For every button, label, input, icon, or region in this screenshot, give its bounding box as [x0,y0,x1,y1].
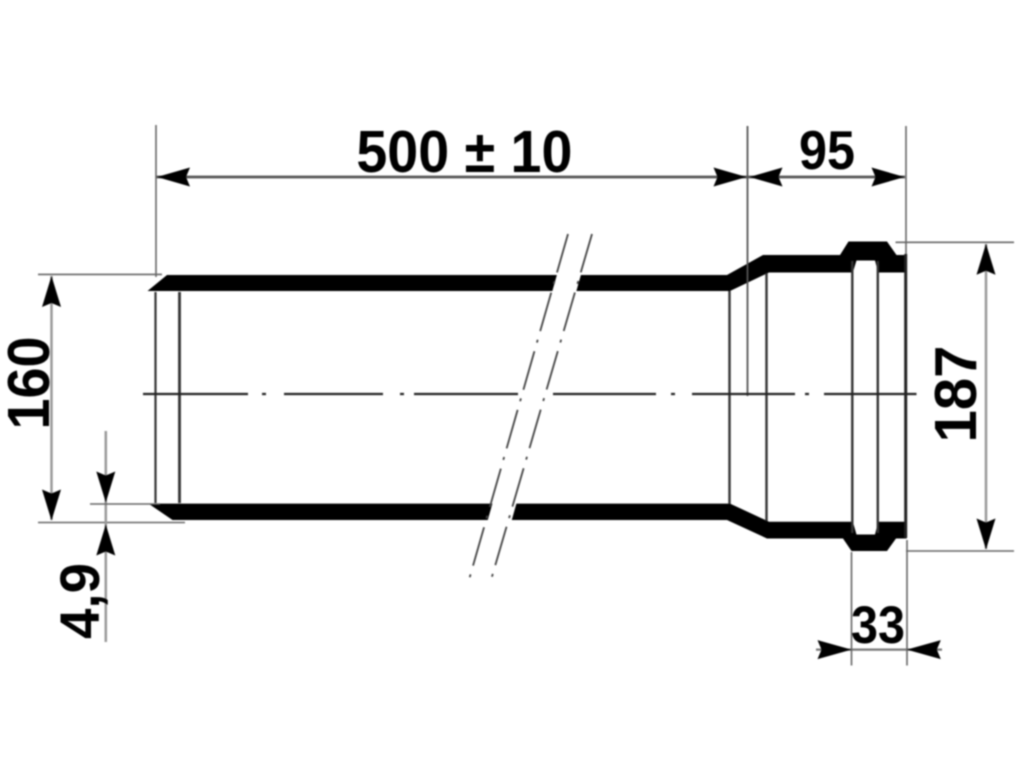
svg-text:33: 33 [851,596,905,655]
svg-text:95: 95 [799,119,855,181]
svg-text:500 ± 10: 500 ± 10 [356,119,572,185]
svg-text:187: 187 [923,346,989,443]
svg-text:160: 160 [0,337,62,430]
svg-text:4,9: 4,9 [48,563,111,639]
